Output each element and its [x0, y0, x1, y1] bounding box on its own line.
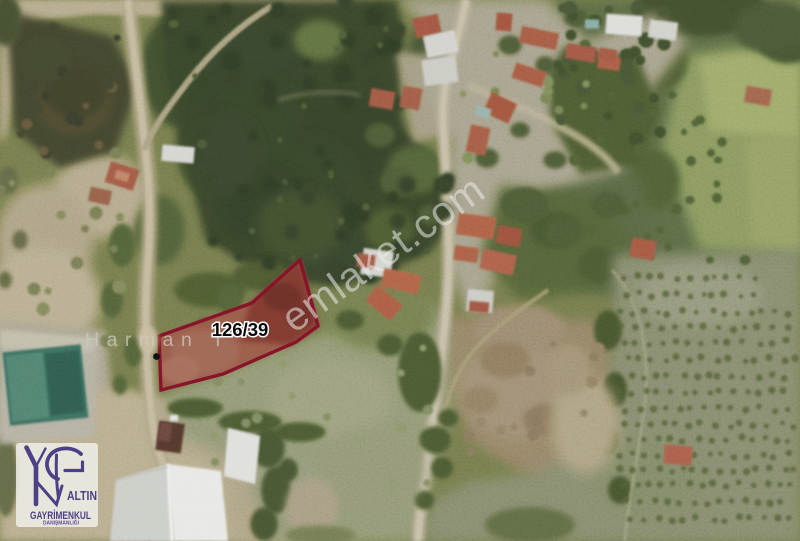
svg-text:ALTIN: ALTIN	[67, 489, 97, 503]
svg-text:126/39: 126/39	[212, 319, 269, 340]
svg-text:DANIŞMANLIĞI: DANIŞMANLIĞI	[43, 519, 80, 527]
svg-text:Harman T: Harman T	[85, 329, 231, 351]
